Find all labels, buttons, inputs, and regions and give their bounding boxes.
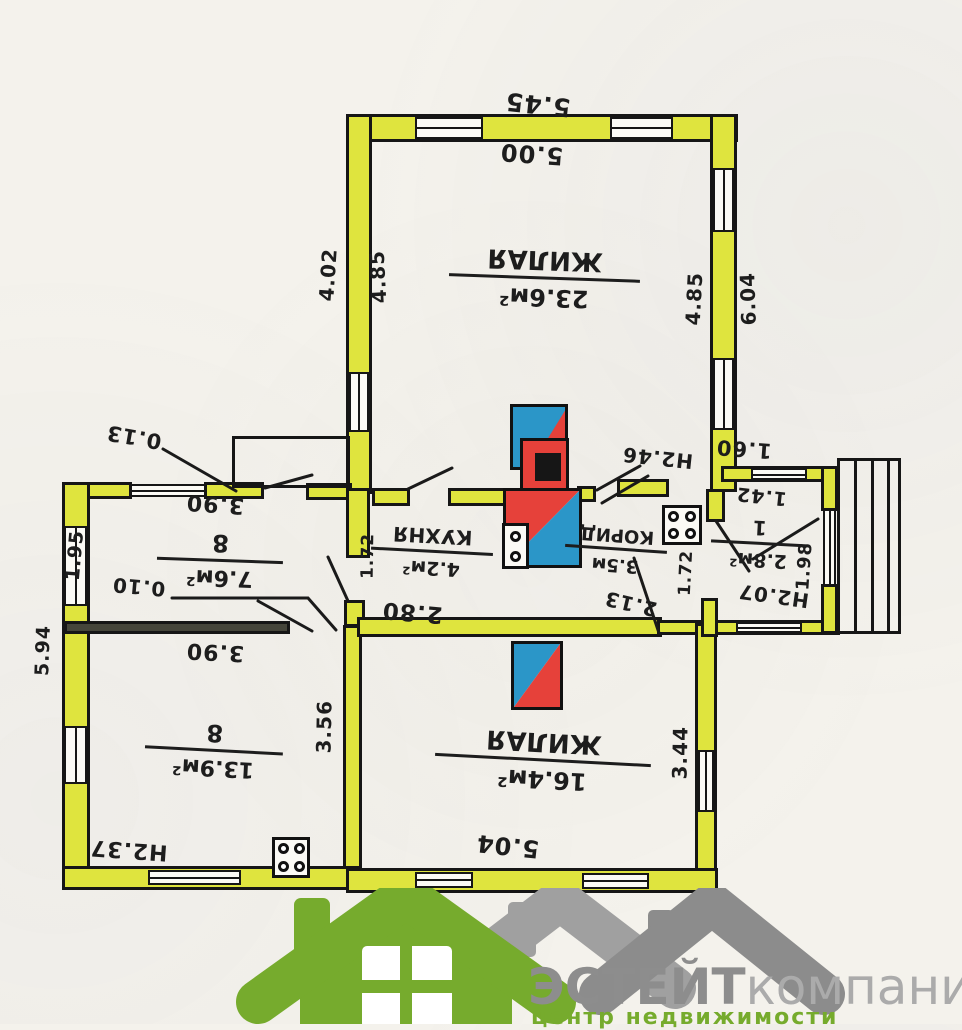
flue-icon [520,438,569,493]
window [64,726,87,784]
room-area: 13.9м² [171,752,254,782]
wall [448,488,507,506]
burner [685,528,696,539]
room-area: 2.8м² [729,546,788,571]
house-window-mullion [362,980,452,993]
window [823,509,836,587]
floor-plan-drawing: 5.45 5.00 4.02 4.85 4.85 6.04 0.13 3.90 … [0,0,962,1024]
house-window-mullion [400,946,412,1024]
house-window-icon [362,946,452,1024]
dim-room16-depth: 3.44 [670,726,691,780]
room-label-living-main: 23.6м² ЖИЛАЯ [461,241,628,313]
room-label-underline [157,556,283,563]
room-label-kitchen: 4.2м² КУХНЯ [383,522,482,581]
window [415,117,483,139]
gray-house-chimney-icon [508,902,536,957]
gray-house-chimney-icon [648,910,674,962]
dim-corridor-span: 2.13 [602,588,658,619]
dim-left-wall-outer: 4.02 [316,247,340,302]
burner [278,861,289,872]
burner [278,843,289,854]
room-name: ЖИЛАЯ [486,723,603,759]
window [736,622,802,633]
dim-room16-width: 5.04 [475,831,540,861]
dim-room8a-depth: 1.95 [64,529,87,581]
dim-top-inner: 5.00 [499,140,564,168]
window [713,168,734,232]
room-area: 16.4м² [497,763,588,795]
dim-right-wall-outer: 6.04 [737,272,759,326]
room-name: КОРИД [579,521,655,547]
room-label-corridor: 3.5м КОРИД [576,521,655,577]
wall [343,625,362,890]
burner [668,528,679,539]
dim-room8b-depth: 3.56 [314,700,335,754]
room-name: 8 [212,528,230,556]
green-house-chimney-icon [294,898,330,960]
burner [685,511,696,522]
porch-outline [837,458,901,634]
green-house-body-icon [300,902,512,1024]
burner [510,551,521,562]
room-area: 23.6м² [499,281,589,312]
wall [701,598,718,637]
dim-annex-wall-thickness: 0.13 [105,421,164,451]
window [698,750,714,812]
wall [372,488,410,506]
stove-icon [511,641,563,710]
room-label-8a: 7.6м² 8 [169,526,271,591]
room-name: ЖИЛАЯ [487,242,603,276]
dim-corridor-width: 1.72 [677,550,696,597]
window [415,872,473,888]
porch-step-line [871,458,874,634]
room-label-underline [711,539,807,547]
agency-logo-tagline: центр недвижимости [531,1005,838,1030]
dim-annex-outer-left: 5.94 [33,625,54,677]
cooktop-4-burner-icon [272,837,310,878]
dim-room8b-height: Н2.37 [89,835,168,862]
room-name: 1 [752,516,767,540]
window [349,372,369,432]
dim-hall-inner: 1.42 [735,483,788,507]
wall [821,584,838,634]
room-area: 4.2м² [402,554,461,579]
room-label-8b: 13.9м² 8 [156,715,271,783]
window [610,117,673,139]
cooktop-4-burner-icon [662,505,702,545]
burner [668,511,679,522]
wall [821,466,838,511]
porch-step-line [887,458,890,634]
dim-hall-depth: 1.98 [794,541,815,591]
green-house-roof-icon [258,896,554,1002]
room-name: 8 [206,718,224,746]
dim-kitchen-height: Н2.46 [621,444,694,471]
scanned-floor-plan-page: { "document": { "type": "hand-drawn floo… [0,0,962,1024]
burner [510,531,521,542]
burner [294,861,305,872]
room-name: КУХНЯ [393,522,473,549]
dim-hall-outer: 1.60 [715,436,772,461]
closet-outline [232,436,350,488]
dim-room8b-width: 3.90 [185,638,244,663]
room-label-underline [371,547,493,556]
window [148,870,241,885]
room-label-underline [449,274,640,284]
dim-room8a-width: 3.90 [185,490,245,516]
wall [346,868,718,893]
room-area: 3.5м [591,552,639,576]
room-area: 7.6м² [186,563,253,591]
dim-kitchen-span: 2.80 [381,597,444,625]
room-label-hall: 2.8м² 1 [723,514,796,571]
window [582,873,649,889]
dim-right-wall-inner: 4.85 [683,272,706,326]
window [713,358,734,430]
partition-wall [64,621,290,634]
dim-top-outer: 5.45 [504,89,572,121]
dim-partition-thickness: 0.10 [111,575,166,600]
room-label-living-second: 16.4м² ЖИЛАЯ [446,721,639,797]
wall [706,489,725,522]
entrance-door [751,468,807,480]
dim-left-wall-inner: 4.85 [367,250,390,304]
porch-step-line [854,458,857,634]
wall [617,479,669,497]
flue-core [535,453,561,481]
dim-kitchen-width: 1.72 [360,533,378,579]
burner [294,843,305,854]
cooktop-2-burner-icon [502,523,529,569]
